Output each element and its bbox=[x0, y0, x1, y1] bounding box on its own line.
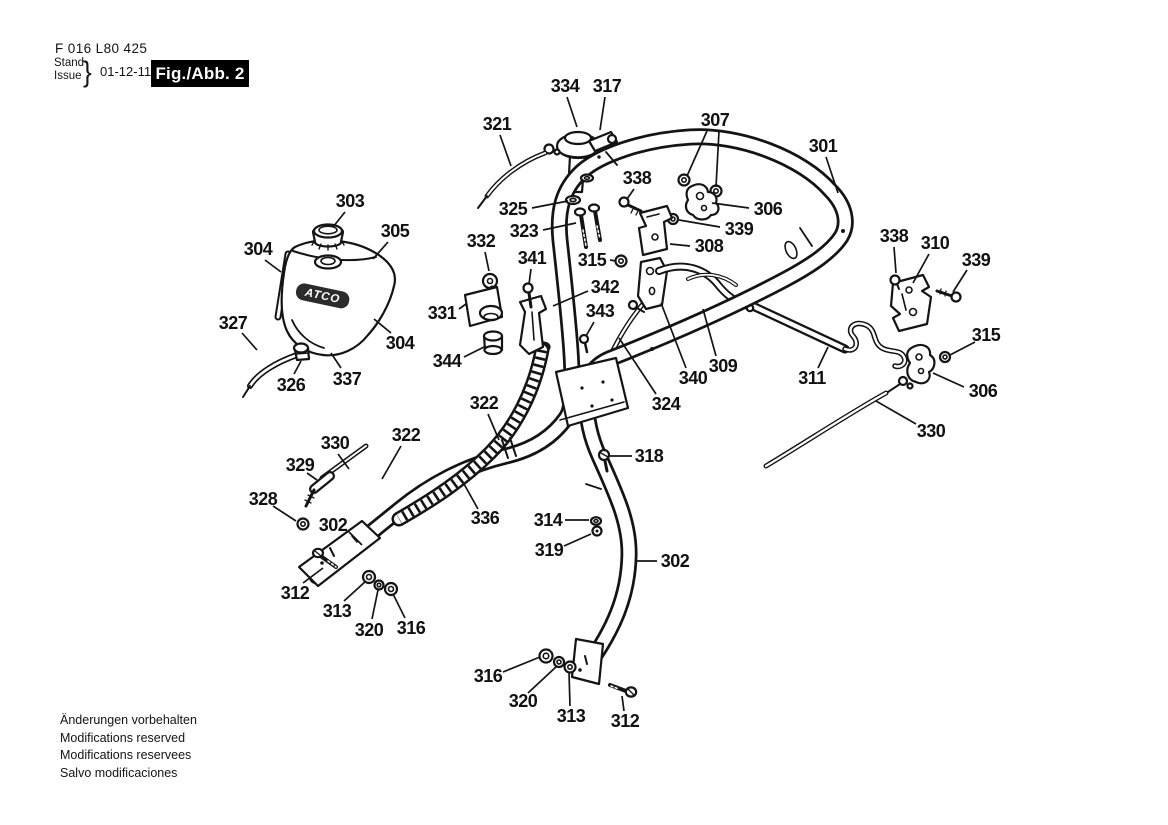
part-label-339-31: 339 bbox=[962, 250, 991, 270]
plate-331 bbox=[465, 287, 502, 326]
part-label-319-48: 319 bbox=[535, 540, 564, 560]
nut-316-left bbox=[385, 583, 397, 595]
nut-328 bbox=[298, 519, 309, 530]
part-label-342-17: 342 bbox=[591, 277, 620, 297]
part-label-330-36: 330 bbox=[321, 433, 350, 453]
part-label-308-10: 308 bbox=[695, 236, 724, 256]
screw-343 bbox=[580, 335, 588, 352]
part-label-316-45: 316 bbox=[397, 618, 426, 638]
leader-line-338 bbox=[894, 247, 896, 273]
part-label-307-3: 307 bbox=[701, 110, 730, 130]
part-label-321-2: 321 bbox=[483, 114, 512, 134]
leader-line-316 bbox=[503, 657, 540, 672]
part-label-309-25: 309 bbox=[709, 356, 738, 376]
leader-line-320 bbox=[528, 666, 557, 693]
screw-338-left bbox=[620, 198, 642, 216]
bracket-342 bbox=[520, 296, 546, 354]
bracket-306-right bbox=[907, 345, 934, 383]
leader-line-317 bbox=[600, 97, 605, 130]
part-label-322-40: 322 bbox=[392, 425, 421, 445]
leader-line-334 bbox=[567, 97, 577, 127]
tank-outlet-326 bbox=[294, 344, 309, 361]
legal-line-en: Modifications reserved bbox=[60, 730, 197, 748]
part-label-332-14: 332 bbox=[467, 231, 496, 251]
washer-313-bottom bbox=[565, 662, 576, 673]
part-label-302-49: 302 bbox=[661, 551, 690, 571]
part-label-312-53: 312 bbox=[611, 711, 640, 731]
part-label-334-0: 334 bbox=[551, 76, 580, 96]
leader-line-303 bbox=[333, 212, 345, 227]
part-label-320-44: 320 bbox=[355, 620, 384, 640]
part-label-302-39: 302 bbox=[319, 515, 348, 535]
leader-line-308 bbox=[670, 244, 690, 246]
part-label-315-16: 315 bbox=[578, 250, 607, 270]
leader-line-316 bbox=[393, 594, 405, 618]
leader-line-306 bbox=[933, 373, 964, 387]
part-label-327-20: 327 bbox=[219, 313, 248, 333]
nut-315-right bbox=[940, 352, 950, 362]
part-label-338-5: 338 bbox=[623, 168, 652, 188]
leader-line-313 bbox=[569, 672, 570, 706]
leader-line-312 bbox=[622, 696, 624, 711]
part-label-339-9: 339 bbox=[725, 219, 754, 239]
part-label-329-37: 329 bbox=[286, 455, 315, 475]
part-label-306-33: 306 bbox=[969, 381, 998, 401]
leader-line-336 bbox=[464, 484, 478, 509]
part-label-318-46: 318 bbox=[635, 446, 664, 466]
part-label-344-21: 344 bbox=[433, 351, 462, 371]
part-label-301-4: 301 bbox=[809, 136, 838, 156]
leader-line-315 bbox=[610, 260, 616, 261]
part-label-304-22: 304 bbox=[386, 333, 415, 353]
part-label-336-41: 336 bbox=[471, 508, 500, 528]
leader-line-304 bbox=[265, 260, 281, 272]
part-label-324-27: 324 bbox=[652, 394, 681, 414]
legal-line-es: Salvo modificaciones bbox=[60, 765, 197, 783]
part-label-316-50: 316 bbox=[474, 666, 503, 686]
part-label-343-18: 343 bbox=[586, 301, 615, 321]
leader-line-327 bbox=[242, 333, 257, 350]
part-label-322-35: 322 bbox=[470, 393, 499, 413]
legal-line-fr: Modifications reservees bbox=[60, 747, 197, 765]
part-label-304-13: 304 bbox=[244, 239, 273, 259]
part-label-312-42: 312 bbox=[281, 583, 310, 603]
part-label-313-52: 313 bbox=[557, 706, 586, 726]
legal-notice: Änderungen vorbehalten Modifications res… bbox=[60, 712, 197, 782]
leader-line-311 bbox=[818, 347, 828, 368]
ring-314 bbox=[591, 517, 601, 525]
cable-330-right bbox=[766, 377, 913, 466]
part-label-306-8: 306 bbox=[754, 199, 783, 219]
part-label-323-7: 323 bbox=[510, 221, 539, 241]
part-label-340-26: 340 bbox=[679, 368, 708, 388]
bottom-grip-302 bbox=[572, 639, 603, 684]
leader-line-338 bbox=[627, 189, 634, 199]
part-label-337-24: 337 bbox=[333, 369, 362, 389]
part-label-320-51: 320 bbox=[509, 691, 538, 711]
leader-line-343 bbox=[586, 322, 594, 336]
bracket-308 bbox=[639, 206, 672, 255]
leader-line-331 bbox=[459, 304, 466, 309]
part-label-341-15: 341 bbox=[518, 248, 547, 268]
part-label-305-12: 305 bbox=[381, 221, 410, 241]
leader-line-332 bbox=[485, 252, 489, 271]
part-label-310-30: 310 bbox=[921, 233, 950, 253]
part-label-317-1: 317 bbox=[593, 76, 622, 96]
part-label-328-38: 328 bbox=[249, 489, 278, 509]
legal-line-de: Änderungen vorbehalten bbox=[60, 712, 197, 730]
leader-line-326 bbox=[294, 361, 301, 374]
part-label-315-32: 315 bbox=[972, 325, 1001, 345]
screw-339-right bbox=[937, 289, 961, 302]
part-label-326-23: 326 bbox=[277, 375, 306, 395]
leader-line-339 bbox=[953, 270, 967, 292]
part-label-311-28: 311 bbox=[798, 368, 826, 388]
nut-315-middle bbox=[616, 256, 627, 267]
leader-line-313 bbox=[344, 581, 366, 601]
washer-320-left bbox=[375, 581, 384, 590]
leader-line-339 bbox=[679, 220, 720, 227]
bushing-344 bbox=[484, 332, 502, 355]
part-label-331-19: 331 bbox=[428, 303, 457, 323]
part-label-313-43: 313 bbox=[323, 601, 352, 621]
nut-316-bottom bbox=[540, 650, 553, 663]
parts-diagram-page: F 016 L80 425 Stand Issue } 01-12-11 Fig… bbox=[0, 0, 1168, 825]
part-label-303-11: 303 bbox=[336, 191, 365, 211]
washer-320-bottom bbox=[554, 657, 564, 667]
leader-line-344 bbox=[464, 347, 484, 357]
part-label-338-29: 338 bbox=[880, 226, 909, 246]
leader-line-319 bbox=[564, 534, 591, 546]
leader-line-320 bbox=[372, 590, 378, 619]
leader-line-322 bbox=[382, 446, 401, 479]
part-label-325-6: 325 bbox=[499, 199, 528, 219]
part-label-330-34: 330 bbox=[917, 421, 946, 441]
exploded-view-drawing: ATCO bbox=[0, 0, 1168, 825]
bolt-319 bbox=[593, 527, 602, 536]
leader-line-330 bbox=[876, 401, 916, 424]
part-label-314-47: 314 bbox=[534, 510, 563, 530]
leader-line-341 bbox=[529, 269, 531, 284]
leader-line-321 bbox=[500, 135, 511, 166]
bolts-323 bbox=[575, 205, 600, 248]
leader-line-322 bbox=[488, 414, 499, 440]
